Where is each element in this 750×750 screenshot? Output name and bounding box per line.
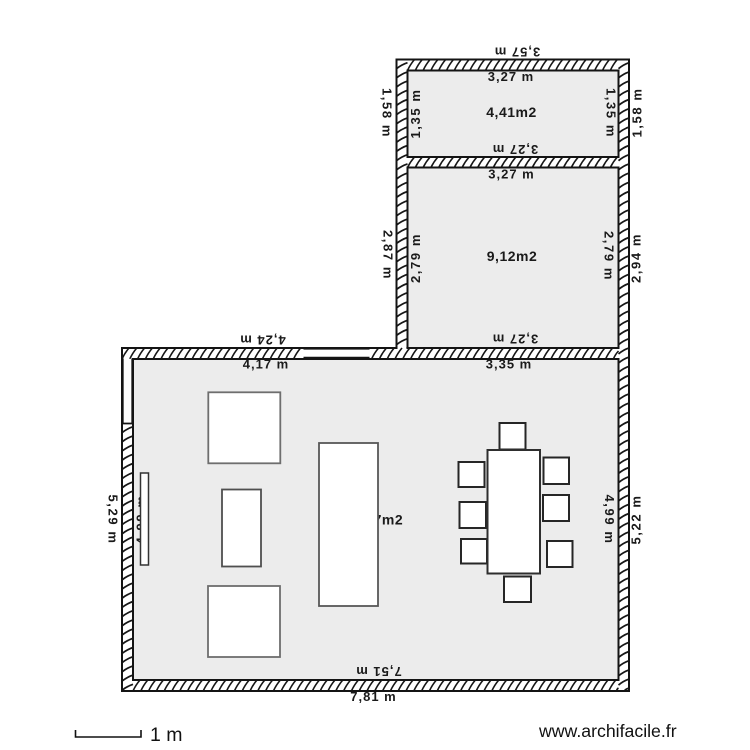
svg-text:3,57 m: 3,57 m — [494, 45, 540, 60]
svg-text:1,58 m: 1,58 m — [630, 87, 645, 137]
svg-text:1 m: 1 m — [150, 724, 183, 746]
svg-text:2,79 m: 2,79 m — [601, 231, 616, 281]
svg-text:7,81 m: 7,81 m — [350, 689, 396, 704]
svg-text:3,27 m: 3,27 m — [492, 332, 538, 347]
svg-text:3,27 m: 3,27 m — [492, 142, 538, 157]
svg-text:3,35 m: 3,35 m — [486, 356, 532, 371]
svg-text:3,27 m: 3,27 m — [488, 69, 534, 84]
svg-text:4,41m2: 4,41m2 — [486, 104, 536, 120]
svg-text:1,58 m: 1,58 m — [379, 88, 394, 138]
svg-text:7,51 m: 7,51 m — [355, 664, 401, 679]
svg-text:5,29 m: 5,29 m — [105, 494, 120, 544]
svg-text:2,79 m: 2,79 m — [408, 233, 423, 283]
svg-text:1,35 m: 1,35 m — [408, 88, 423, 138]
svg-text:1,35 m: 1,35 m — [603, 88, 618, 138]
svg-text:4,99 m: 4,99 m — [602, 494, 617, 544]
svg-text:4,17 m: 4,17 m — [243, 356, 289, 371]
svg-text:2,87 m: 2,87 m — [380, 230, 395, 280]
svg-text:2,94 m: 2,94 m — [629, 233, 644, 283]
svg-text:9,12m2: 9,12m2 — [487, 248, 537, 264]
svg-text:4,24 m: 4,24 m — [239, 333, 285, 348]
svg-text:3,27 m: 3,27 m — [488, 167, 534, 182]
svg-text:5,22 m: 5,22 m — [629, 494, 644, 544]
svg-text:www.archifacile.fr: www.archifacile.fr — [538, 721, 677, 741]
